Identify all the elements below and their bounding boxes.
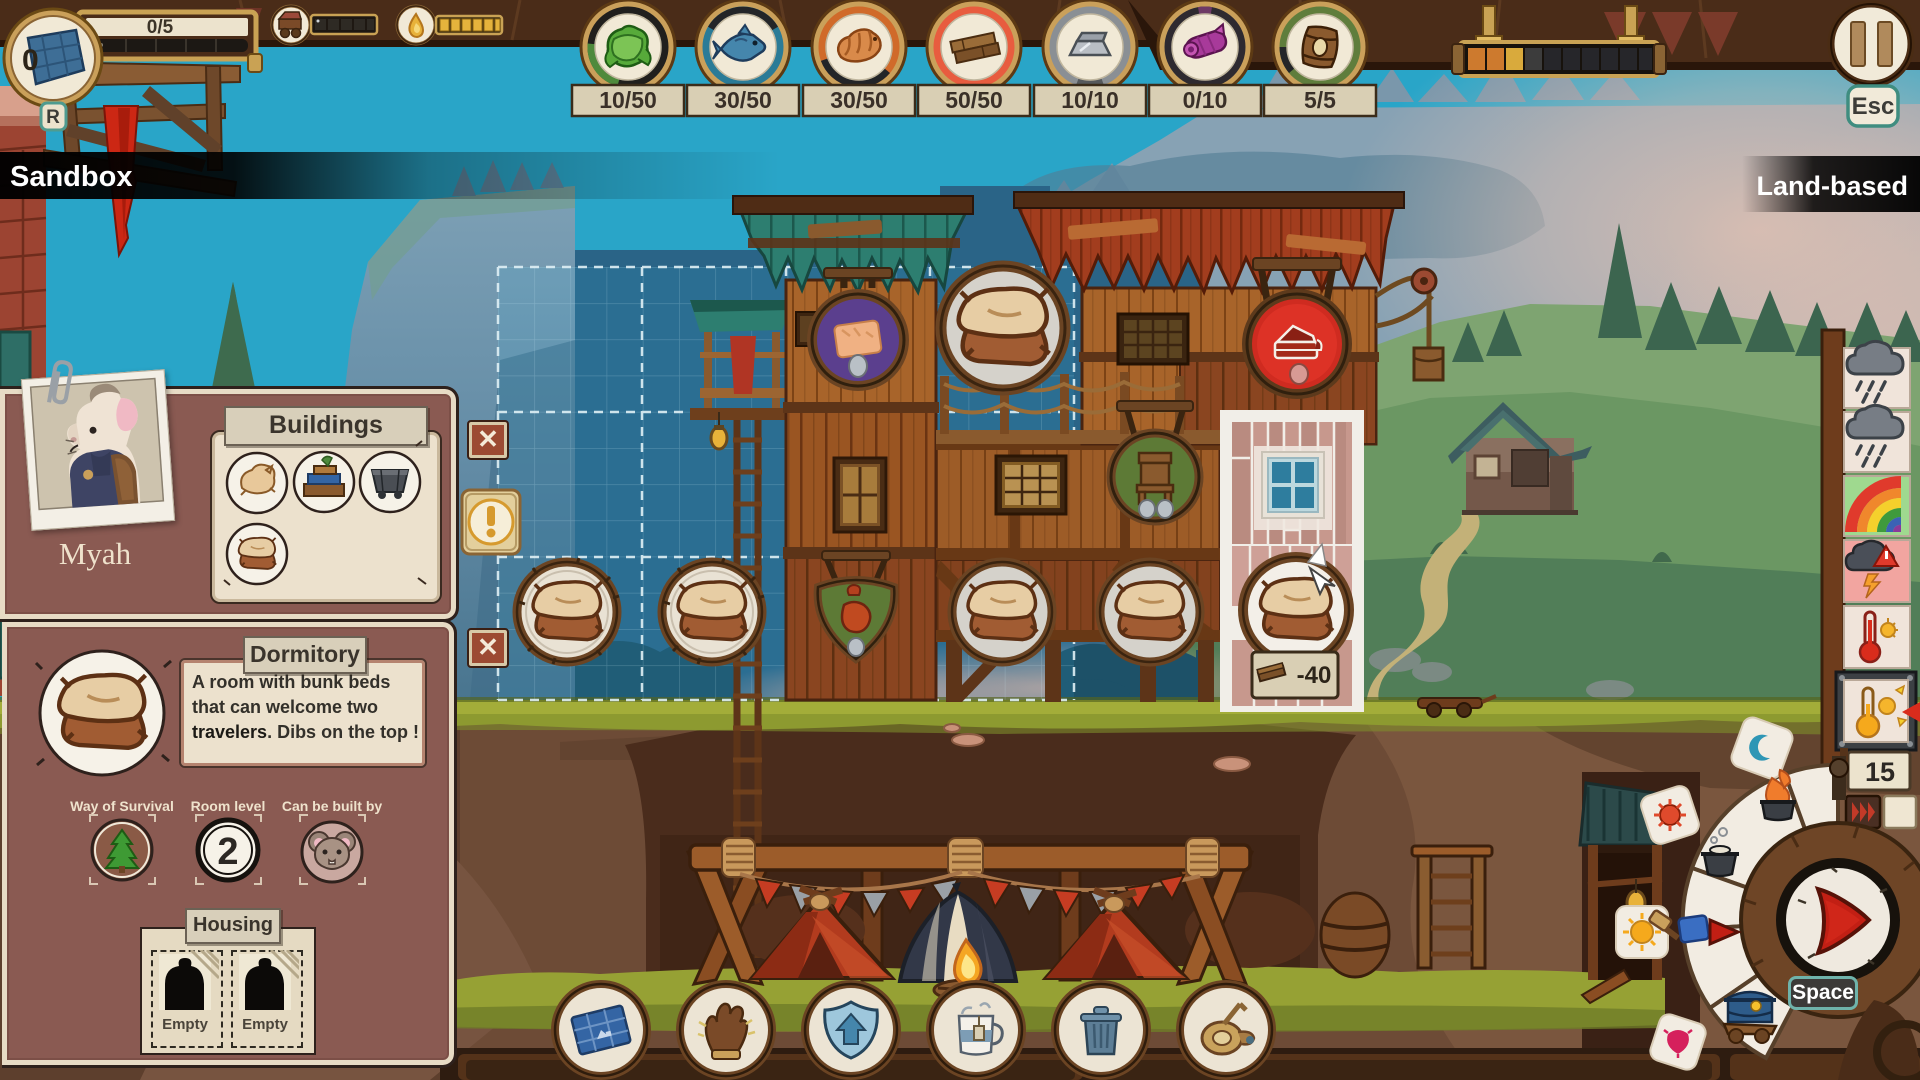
svg-text:15: 15 bbox=[1865, 757, 1895, 787]
svg-text:2: 2 bbox=[217, 831, 238, 873]
